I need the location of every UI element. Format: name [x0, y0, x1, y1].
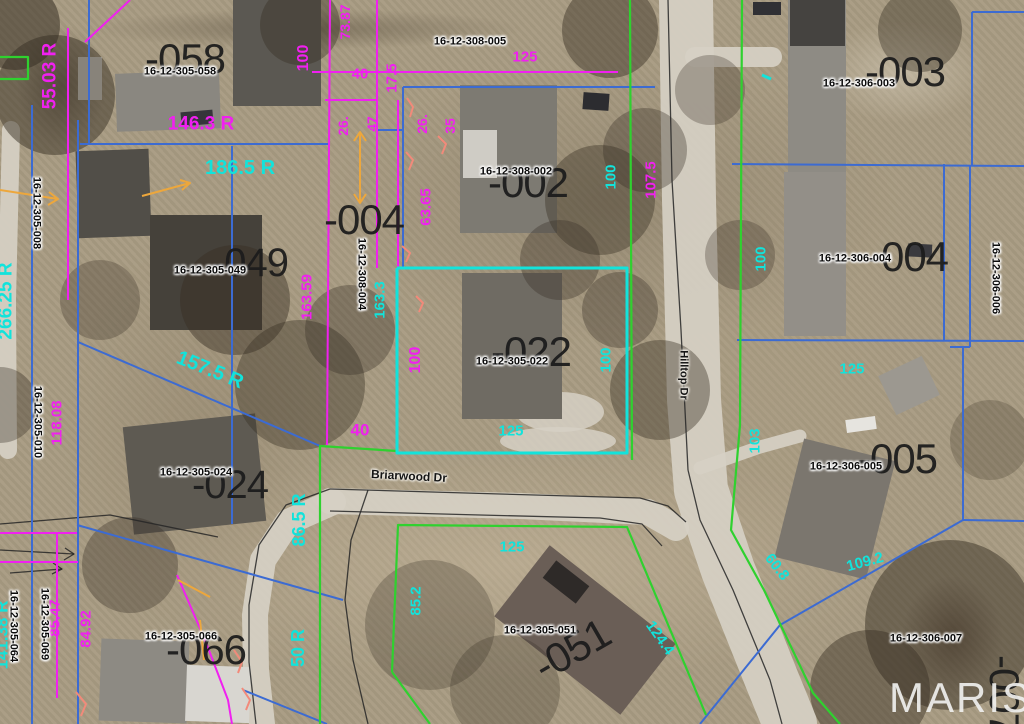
- dimension-label: 125: [498, 424, 523, 439]
- dimension-label: 100: [599, 347, 614, 372]
- parcel-id-label: 16-12-305-051: [504, 626, 576, 637]
- parcel-id-label: 16-12-306-006: [990, 242, 1001, 314]
- parcel-id-label: 16-12-306-004: [819, 254, 891, 265]
- black-parcel-line: [0, 550, 74, 554]
- parcel-map[interactable]: 55.03 R146.3 R10073.874017.512526.4726.3…: [0, 0, 1024, 724]
- magenta-parcel-line: [85, 0, 130, 42]
- parcel-id-label: 16-12-306-007: [890, 634, 962, 645]
- parcel-id-label: 16-12-305-010: [32, 386, 43, 458]
- salmon-parcel-line: [438, 136, 446, 154]
- dimension-label: 40: [351, 422, 370, 439]
- salmon-parcel-line: [416, 296, 423, 312]
- parcel-id-label: 16-12-305-066: [145, 632, 217, 643]
- dimension-label: 85.2: [409, 586, 424, 615]
- dimension-label: 17.5: [385, 63, 400, 92]
- dimension-label: 100: [408, 347, 424, 374]
- parcel-id-label: 16-12-308-002: [480, 167, 552, 178]
- dimension-label: 125: [512, 50, 537, 65]
- dimension-label: 86.5 R: [290, 493, 308, 546]
- dimension-label: 103: [748, 428, 763, 453]
- car: [845, 416, 877, 433]
- dimension-label: 26.: [415, 114, 429, 133]
- salmon-parcel-line: [407, 98, 413, 117]
- dimension-label: 63.65: [419, 188, 434, 226]
- parcel-id-label: 16-12-305-058: [144, 67, 216, 78]
- parcel-id-label: 16-12-306-003: [823, 79, 895, 90]
- parcel-id-label: 16-12-305-064: [8, 590, 19, 662]
- parcel-id-label: 16-12-305-024: [160, 468, 232, 479]
- dimension-label: 55.03 R: [41, 43, 60, 110]
- dimension-label: 118.08: [50, 400, 65, 445]
- dimension-label: 107.5: [644, 161, 659, 199]
- dimension-label: 163.3: [373, 281, 388, 319]
- dimension-label: 186.5 R: [205, 158, 275, 178]
- parcel-id-label: 16-12-308-004: [356, 238, 367, 310]
- dimension-label: 163.59: [300, 274, 315, 320]
- dimension-label: 50 R: [289, 629, 307, 667]
- dimension-label: 40: [352, 67, 369, 82]
- street-label: Hilltop Dr: [678, 350, 689, 400]
- cyan-parcel-line: [762, 75, 771, 79]
- street-label: Briarwood Dr: [371, 468, 448, 484]
- house: [878, 356, 940, 415]
- car: [753, 2, 781, 15]
- dimension-label: 100: [296, 45, 312, 72]
- dimension-label: 73.87: [338, 4, 352, 39]
- parcel-number-label: -005: [857, 438, 937, 480]
- dimension-label: 125: [499, 540, 524, 555]
- dimension-label: 47: [365, 116, 379, 132]
- dimension-label: 100: [604, 164, 619, 189]
- dimension-label: 100: [754, 246, 769, 271]
- blue-parcel-line: [732, 164, 1024, 166]
- parcel-id-label: 16-12-305-049: [174, 266, 246, 277]
- parcel-number-label: -004: [324, 199, 404, 241]
- black-parcel-line: [345, 490, 368, 724]
- dimension-label: 26.: [336, 116, 350, 135]
- maris-watermark: MARIS: [889, 674, 1024, 722]
- parcel-number-label: -049: [212, 243, 288, 283]
- salmon-parcel-line: [406, 152, 413, 170]
- blue-parcel-line: [963, 520, 1024, 521]
- parcel-id-label: 16-12-305-022: [476, 357, 548, 368]
- parcel-id-label: 16-12-305-069: [39, 588, 50, 660]
- house: [76, 149, 152, 238]
- dimension-label: 146.3 R: [168, 115, 235, 134]
- dimension-label: 125: [839, 362, 864, 377]
- green-parcel-line: [320, 446, 397, 451]
- parcel-id-label: 16-12-305-008: [31, 177, 42, 249]
- dimension-label: 84.92: [79, 610, 94, 648]
- parcel-id-label: 16-12-308-005: [434, 37, 506, 48]
- blue-parcel-line: [737, 340, 1024, 341]
- house: [790, 0, 845, 46]
- car: [582, 92, 609, 111]
- parcel-id-label: 16-12-306-005: [810, 462, 882, 473]
- dimension-label: 266.25 R: [0, 262, 16, 339]
- dimension-label: 35: [443, 118, 457, 134]
